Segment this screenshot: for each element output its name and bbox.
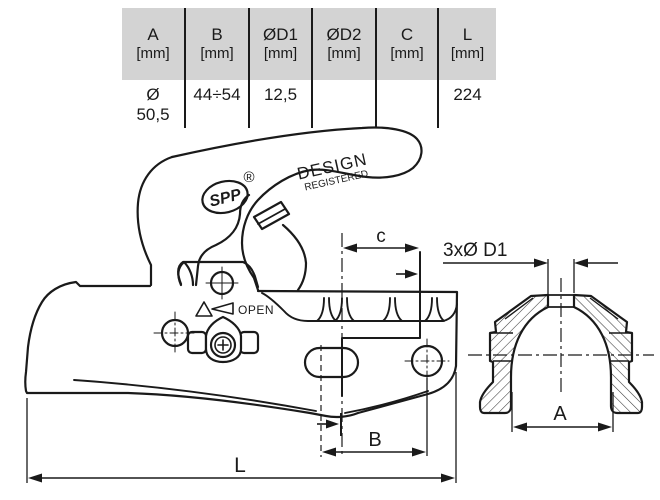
pivot-pin	[206, 267, 238, 299]
design-registered-label: DESIGN REGISTERED	[295, 150, 371, 195]
cross-section-view	[468, 278, 654, 413]
hook-right-flange	[283, 225, 306, 290]
dim-a-label: A	[553, 403, 567, 425]
dim-l-label: L	[234, 454, 246, 477]
dim-d1-label: 3xØ D1	[443, 240, 507, 261]
handle-neck-left	[138, 157, 172, 285]
section-band-right	[574, 295, 642, 413]
dim-c	[343, 244, 419, 279]
open-arrow-icon	[212, 303, 233, 314]
dim-b-label: B	[368, 429, 381, 451]
body-bottom-chamfer-right	[345, 391, 428, 413]
spp-logo-text: SPP	[208, 186, 243, 210]
bracket-flutes	[262, 293, 457, 321]
dim-c-label: c	[376, 226, 386, 247]
open-label: OPEN	[238, 303, 274, 317]
adjustment-slot	[305, 348, 358, 377]
rear-hole	[405, 339, 449, 383]
warning-triangle-icon	[196, 302, 212, 316]
dim-d1	[443, 259, 618, 295]
dimensions	[27, 233, 618, 483]
coupling-drawing: SPP ® DESIGN REGISTERED OPEN c 3xØ D1 A …	[0, 0, 660, 500]
handle-outline	[172, 127, 422, 290]
registered-mark: ®	[243, 169, 254, 186]
side-view	[25, 127, 457, 417]
technical-drawing-page: A [mm] Ø 50,5 B [mm] 44÷54 ØD1 [mm] 12,5	[0, 0, 660, 500]
spp-logo: SPP ®	[199, 169, 255, 218]
open-indicator	[196, 302, 233, 316]
body-bottom-chamfer-left	[74, 380, 316, 411]
lock-mechanism	[188, 317, 258, 362]
